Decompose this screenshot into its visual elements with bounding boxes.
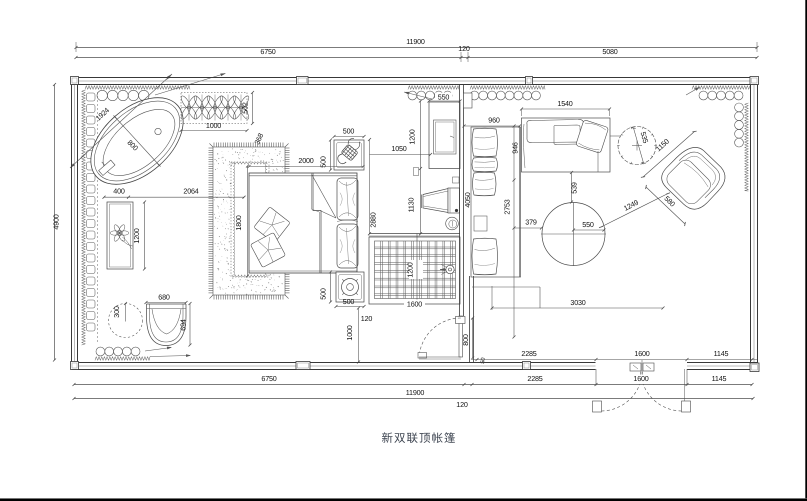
svg-text:2285: 2285: [527, 374, 542, 383]
svg-text:6750: 6750: [260, 47, 275, 56]
svg-text:1200: 1200: [132, 228, 141, 243]
svg-text:379: 379: [525, 218, 537, 227]
svg-text:50: 50: [479, 357, 487, 364]
svg-text:120: 120: [456, 400, 468, 409]
svg-text:500: 500: [319, 156, 328, 168]
svg-text:502: 502: [241, 102, 250, 114]
svg-text:2064: 2064: [183, 187, 198, 196]
svg-text:1600: 1600: [633, 374, 648, 383]
svg-text:2753: 2753: [503, 199, 512, 214]
svg-text:3030: 3030: [570, 298, 585, 307]
svg-text:120: 120: [361, 314, 373, 323]
svg-text:960: 960: [488, 116, 500, 125]
svg-text:539: 539: [570, 182, 579, 194]
svg-text:500: 500: [343, 297, 355, 306]
svg-text:1145: 1145: [712, 374, 727, 383]
svg-text:5080: 5080: [602, 47, 617, 56]
svg-text:946: 946: [511, 142, 520, 154]
svg-text:680: 680: [158, 293, 170, 302]
svg-text:1050: 1050: [391, 144, 406, 153]
svg-text:1000: 1000: [345, 325, 354, 340]
svg-text:550: 550: [582, 220, 594, 229]
svg-text:500: 500: [319, 288, 328, 300]
svg-text:2000: 2000: [298, 156, 313, 165]
svg-text:4900: 4900: [52, 214, 61, 229]
svg-text:500: 500: [343, 127, 355, 136]
svg-text:1145: 1145: [714, 349, 729, 358]
svg-text:1000: 1000: [206, 121, 221, 130]
svg-text:2880: 2880: [369, 212, 378, 227]
svg-text:800: 800: [461, 334, 470, 346]
svg-text:1130: 1130: [407, 197, 416, 212]
svg-text:550: 550: [438, 93, 450, 102]
svg-text:300: 300: [112, 306, 121, 318]
svg-text:1200: 1200: [408, 129, 417, 144]
svg-text:1800: 1800: [234, 215, 243, 230]
svg-text:6750: 6750: [261, 374, 276, 383]
svg-text:400: 400: [113, 187, 125, 196]
svg-text:11900: 11900: [406, 37, 425, 46]
svg-text:1540: 1540: [557, 99, 572, 108]
svg-text:120: 120: [458, 44, 470, 53]
svg-text:11900: 11900: [406, 388, 425, 397]
svg-text:新双联顶帐篷: 新双联顶帐篷: [382, 432, 457, 445]
svg-text:4050: 4050: [463, 192, 472, 207]
svg-text:1600: 1600: [407, 300, 422, 309]
svg-text:1200: 1200: [406, 262, 415, 277]
svg-text:694: 694: [179, 319, 188, 331]
svg-text:2285: 2285: [521, 349, 536, 358]
svg-text:1600: 1600: [634, 349, 649, 358]
